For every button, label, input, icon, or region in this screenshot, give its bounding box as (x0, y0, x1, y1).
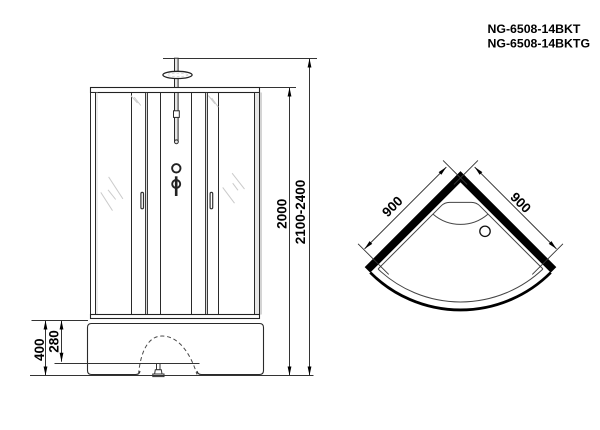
svg-text:280: 280 (46, 330, 61, 353)
svg-text:2000: 2000 (274, 199, 289, 229)
svg-text:400: 400 (32, 338, 47, 361)
svg-text:2100-2400: 2100-2400 (293, 180, 308, 245)
svg-text:NG-6508-14BKT: NG-6508-14BKT (488, 22, 581, 36)
svg-text:NG-6508-14BKTG: NG-6508-14BKTG (488, 36, 591, 50)
